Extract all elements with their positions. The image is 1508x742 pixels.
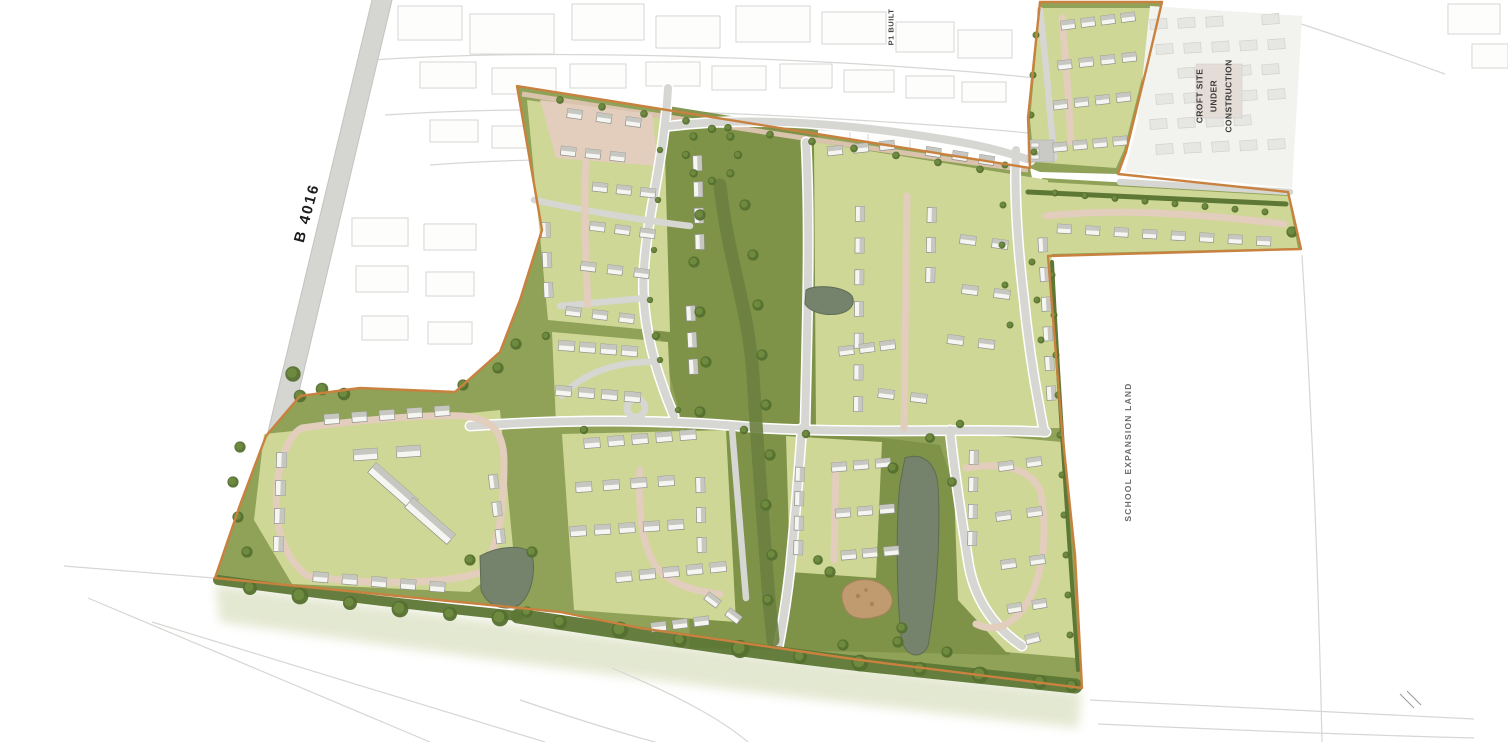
house (352, 411, 368, 422)
house (855, 270, 864, 285)
tree (756, 349, 767, 360)
house (275, 480, 286, 495)
tree (443, 607, 457, 621)
tree (556, 96, 564, 104)
tree (492, 610, 509, 627)
house (610, 151, 626, 162)
house (672, 619, 688, 630)
house (544, 282, 554, 297)
house (495, 529, 506, 544)
house (592, 310, 608, 321)
house (565, 306, 581, 317)
tree (285, 366, 300, 381)
tree (896, 622, 907, 633)
house (430, 581, 446, 592)
tree (647, 297, 653, 303)
tree (652, 332, 660, 340)
tree (1059, 472, 1066, 479)
tree (694, 209, 705, 220)
house (862, 548, 878, 558)
house (619, 522, 636, 533)
tree (682, 117, 690, 125)
house (1053, 142, 1068, 152)
tree (227, 476, 238, 487)
house (854, 365, 863, 380)
p1-built-label: P1 BUILT (887, 9, 896, 46)
site-plan-drawing (0, 0, 1508, 742)
tree (976, 165, 984, 173)
house (616, 185, 632, 196)
house (1122, 52, 1137, 63)
tree (1142, 198, 1149, 205)
tree (724, 124, 732, 132)
house (1085, 226, 1100, 236)
tree (1262, 208, 1269, 215)
tree (464, 554, 475, 565)
house (880, 340, 896, 351)
house (1079, 57, 1094, 68)
tree (802, 430, 810, 438)
house (592, 182, 608, 193)
house (1000, 559, 1016, 570)
tree (941, 646, 952, 657)
tree (1000, 202, 1007, 209)
house (1057, 224, 1072, 234)
tree (766, 549, 777, 560)
tree (1063, 552, 1070, 559)
house (274, 508, 285, 523)
tree (1038, 337, 1045, 344)
house (855, 238, 864, 253)
house (680, 429, 697, 440)
tree (234, 441, 245, 452)
house (1046, 386, 1056, 400)
house (276, 452, 287, 467)
house (794, 541, 803, 555)
house (969, 450, 978, 464)
house (632, 433, 649, 444)
tree (764, 449, 775, 460)
tree (837, 639, 848, 650)
tree (580, 426, 588, 434)
house (621, 345, 638, 356)
house (542, 252, 552, 267)
tree (739, 199, 750, 210)
house (1171, 231, 1186, 241)
house (1038, 238, 1048, 252)
house (639, 569, 656, 581)
house (624, 391, 641, 402)
house (1057, 59, 1072, 70)
house (854, 397, 863, 412)
tree (925, 433, 935, 443)
house (857, 506, 873, 516)
house (854, 301, 863, 316)
house (640, 187, 656, 198)
house (693, 616, 709, 627)
house (1116, 92, 1131, 103)
tree (657, 147, 663, 153)
tree (689, 169, 697, 177)
tree (824, 566, 835, 577)
house (1228, 234, 1243, 244)
house (560, 146, 576, 157)
house (1045, 356, 1055, 370)
house (962, 285, 979, 296)
house (686, 306, 696, 321)
tree (726, 169, 734, 177)
tree (762, 594, 773, 605)
house (795, 492, 804, 506)
tree (640, 110, 648, 118)
tree (892, 636, 903, 647)
house (619, 313, 635, 324)
tree (292, 588, 309, 605)
house (910, 393, 927, 404)
tree (708, 125, 716, 133)
tree (734, 151, 742, 159)
tree (752, 299, 763, 310)
tree (850, 145, 858, 153)
tree (655, 197, 661, 203)
house (1093, 138, 1108, 148)
house (643, 521, 660, 532)
tree (694, 306, 705, 317)
house (324, 413, 340, 424)
house (696, 477, 705, 492)
house (570, 526, 587, 537)
house (841, 550, 857, 560)
croft-site-label: CROFT SITE UNDER CONSTRUCTION (1192, 59, 1235, 132)
house (584, 437, 601, 448)
house (696, 507, 705, 522)
tree (553, 615, 567, 629)
house (273, 536, 284, 551)
house (994, 289, 1011, 300)
house (663, 566, 680, 578)
tree (766, 131, 774, 139)
house (1074, 97, 1089, 108)
house (838, 345, 854, 356)
house (695, 234, 704, 249)
house (947, 335, 964, 346)
house (1026, 456, 1042, 467)
house (313, 572, 329, 583)
house (371, 576, 387, 587)
house (567, 109, 583, 120)
house (693, 182, 702, 197)
tree (492, 362, 503, 373)
house (607, 265, 623, 276)
house (1142, 229, 1157, 239)
house (614, 225, 630, 236)
house (625, 117, 641, 128)
house (686, 564, 703, 576)
croft-label-line2: UNDER (1207, 59, 1221, 132)
house (1199, 233, 1214, 243)
tree (343, 596, 357, 610)
house (656, 431, 673, 442)
house (879, 504, 895, 514)
house (710, 561, 727, 573)
house (1095, 94, 1110, 105)
tree (1034, 297, 1041, 304)
tree (760, 399, 771, 410)
house (853, 460, 869, 470)
house (1080, 17, 1095, 28)
tree (688, 256, 699, 267)
house (594, 524, 611, 535)
house (658, 475, 675, 486)
tree (760, 499, 771, 510)
house (400, 579, 416, 590)
tree (887, 462, 898, 473)
tree (956, 420, 964, 428)
tree (241, 546, 252, 557)
house (342, 574, 358, 585)
house (1113, 136, 1128, 146)
tree (852, 655, 869, 672)
house (634, 268, 650, 279)
tree (598, 103, 606, 111)
house (835, 508, 851, 518)
house (1053, 99, 1068, 110)
house (878, 389, 895, 400)
house (580, 261, 596, 272)
tree (813, 555, 823, 565)
pond-central (805, 287, 853, 315)
house (998, 460, 1014, 471)
house (968, 504, 977, 518)
masterplan-canvas: B 4016 P1 BUILT CROFT SITE UNDER CONSTRU… (0, 0, 1508, 742)
tree (1065, 592, 1072, 599)
tree (1031, 149, 1038, 156)
house (693, 156, 702, 171)
house (608, 435, 625, 446)
house (558, 340, 575, 351)
house (795, 467, 804, 481)
house (827, 145, 843, 155)
school-expansion-land-label: SCHOOL EXPANSION LAND (1123, 382, 1133, 521)
house (407, 407, 423, 418)
tree (1067, 632, 1074, 639)
house (578, 387, 595, 398)
house (579, 342, 596, 353)
house (585, 149, 601, 160)
tree (1172, 200, 1179, 207)
house (1100, 54, 1115, 65)
tree (682, 151, 690, 159)
croft-label-line3: CONSTRUCTION (1221, 59, 1235, 132)
tree (1002, 282, 1009, 289)
house (855, 206, 864, 221)
house (1256, 236, 1271, 246)
house (1007, 602, 1022, 613)
house (1026, 507, 1042, 518)
tree (1029, 259, 1036, 266)
tree (1082, 192, 1089, 199)
tree (947, 477, 957, 487)
tree (392, 601, 409, 618)
tree (510, 338, 521, 349)
house (926, 267, 935, 282)
house (555, 385, 572, 396)
house (488, 474, 499, 489)
tree (934, 159, 942, 167)
house (575, 481, 592, 492)
tree (1202, 203, 1209, 210)
house (667, 519, 684, 530)
house (434, 405, 450, 416)
house (603, 479, 620, 490)
tree (700, 356, 711, 367)
house (859, 343, 875, 354)
house (968, 531, 977, 545)
house (615, 571, 632, 583)
house (1100, 14, 1115, 25)
tree (651, 247, 657, 253)
tree (747, 249, 758, 260)
croft-label-line1: CROFT SITE (1192, 59, 1206, 132)
house (995, 511, 1011, 522)
house (697, 537, 706, 552)
tree (542, 332, 550, 340)
tree (1232, 206, 1239, 213)
tree (526, 546, 537, 557)
house (630, 477, 647, 488)
tree (1112, 195, 1119, 202)
house (1060, 19, 1075, 30)
house (492, 502, 503, 517)
tree (694, 406, 705, 417)
tree (1052, 190, 1059, 197)
house (883, 546, 899, 556)
house (1114, 227, 1129, 237)
tree (1007, 322, 1014, 329)
tree (740, 426, 748, 434)
tree (892, 152, 900, 160)
house (353, 448, 378, 461)
house (589, 221, 605, 232)
house (926, 237, 935, 252)
house (927, 207, 936, 222)
house (969, 477, 978, 491)
house (639, 228, 655, 239)
house (379, 409, 395, 420)
tree (689, 132, 697, 140)
tree (657, 357, 663, 363)
tree (808, 138, 816, 146)
house (960, 235, 977, 246)
house (794, 516, 803, 530)
tree (1061, 512, 1068, 519)
house (688, 359, 698, 374)
house (1029, 555, 1045, 566)
tree (726, 132, 734, 140)
house (596, 113, 612, 124)
house (1120, 12, 1135, 23)
tree (708, 177, 716, 185)
tree (999, 242, 1006, 249)
house (1041, 297, 1051, 311)
house (1073, 140, 1088, 150)
house (1032, 598, 1047, 609)
tree (675, 407, 681, 413)
house (600, 344, 617, 355)
house (831, 462, 847, 472)
house (978, 339, 995, 350)
house (601, 389, 618, 400)
house (687, 332, 697, 347)
house (396, 445, 421, 458)
house (1043, 327, 1053, 341)
